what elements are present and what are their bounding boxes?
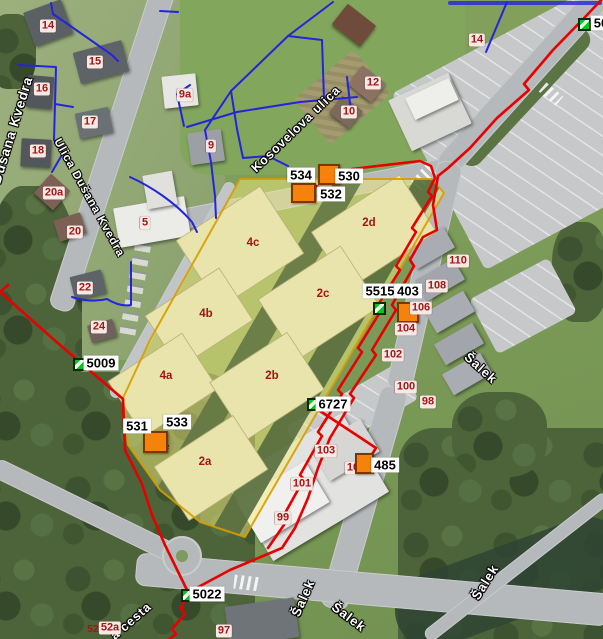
- complex-unit-label: 2c: [317, 288, 330, 300]
- green-survey-marker[interactable]: [578, 18, 591, 31]
- house-number-label: 101: [291, 478, 313, 491]
- house-number-label: 99: [275, 512, 291, 525]
- house-number-label: 15: [87, 56, 103, 69]
- orange-point-marker[interactable]: [291, 183, 316, 203]
- marker-id-label: 5022: [190, 587, 225, 602]
- house-number-label: 110: [447, 255, 469, 268]
- complex-unit-label: 2a: [199, 456, 212, 468]
- map-vector-overlay: [0, 0, 603, 639]
- marker-id-label: 532: [317, 187, 345, 202]
- house-number-label: 103: [315, 445, 337, 458]
- complex-unit-label: 4b: [199, 308, 212, 320]
- complex-unit-label: 4c: [247, 237, 260, 249]
- marker-id-label: 5515: [363, 284, 398, 299]
- marker-id-label: 50: [591, 16, 603, 31]
- orange-point-marker[interactable]: [143, 431, 168, 453]
- house-number-label: 52a: [99, 622, 121, 635]
- marker-id-label: 6727: [316, 397, 351, 412]
- house-number-label: 17: [82, 116, 98, 129]
- complex-unit-label: 2b: [265, 370, 278, 382]
- complex-unit-label: 4a: [160, 370, 173, 382]
- house-number-label: 104: [395, 323, 417, 336]
- house-number-label: 10: [341, 106, 357, 119]
- house-number-label: 18: [30, 145, 46, 158]
- marker-id-label: 534: [287, 168, 315, 183]
- green-survey-marker[interactable]: [373, 302, 386, 315]
- house-number-label: 14: [469, 34, 485, 47]
- house-number-label: 9: [206, 140, 216, 153]
- marker-id-label: 533: [163, 415, 191, 430]
- house-number-label: 97: [216, 625, 232, 638]
- marker-id-label: 485: [371, 458, 399, 473]
- house-number-label: 24: [91, 321, 107, 334]
- house-number-label: 106: [410, 302, 432, 315]
- house-number-label: 20a: [43, 187, 65, 200]
- house-number-label: 16: [34, 83, 50, 96]
- house-number-label: 102: [382, 349, 404, 362]
- house-number-label: 22: [77, 282, 93, 295]
- house-number-label: 100: [395, 381, 417, 394]
- house-number-label: 14: [40, 20, 56, 33]
- complex-unit-label: 2d: [362, 217, 375, 229]
- marker-id-label: 403: [394, 284, 422, 299]
- house-number-label: 98: [420, 396, 436, 409]
- house-number-label: 5: [140, 217, 150, 230]
- house-number-label: 9a: [177, 89, 193, 102]
- house-number-label: 20: [67, 226, 83, 239]
- marker-id-label: 530: [335, 169, 363, 184]
- house-number-label: 108: [426, 280, 448, 293]
- parcel-number-label: 52: [87, 623, 99, 635]
- marker-id-label: 531: [123, 419, 151, 434]
- aerial-map[interactable]: Ulica Dušana KvedraUlica Dušana KvedraKo…: [0, 0, 603, 639]
- marker-id-label: 5009: [84, 356, 119, 371]
- house-number-label: 12: [365, 77, 381, 90]
